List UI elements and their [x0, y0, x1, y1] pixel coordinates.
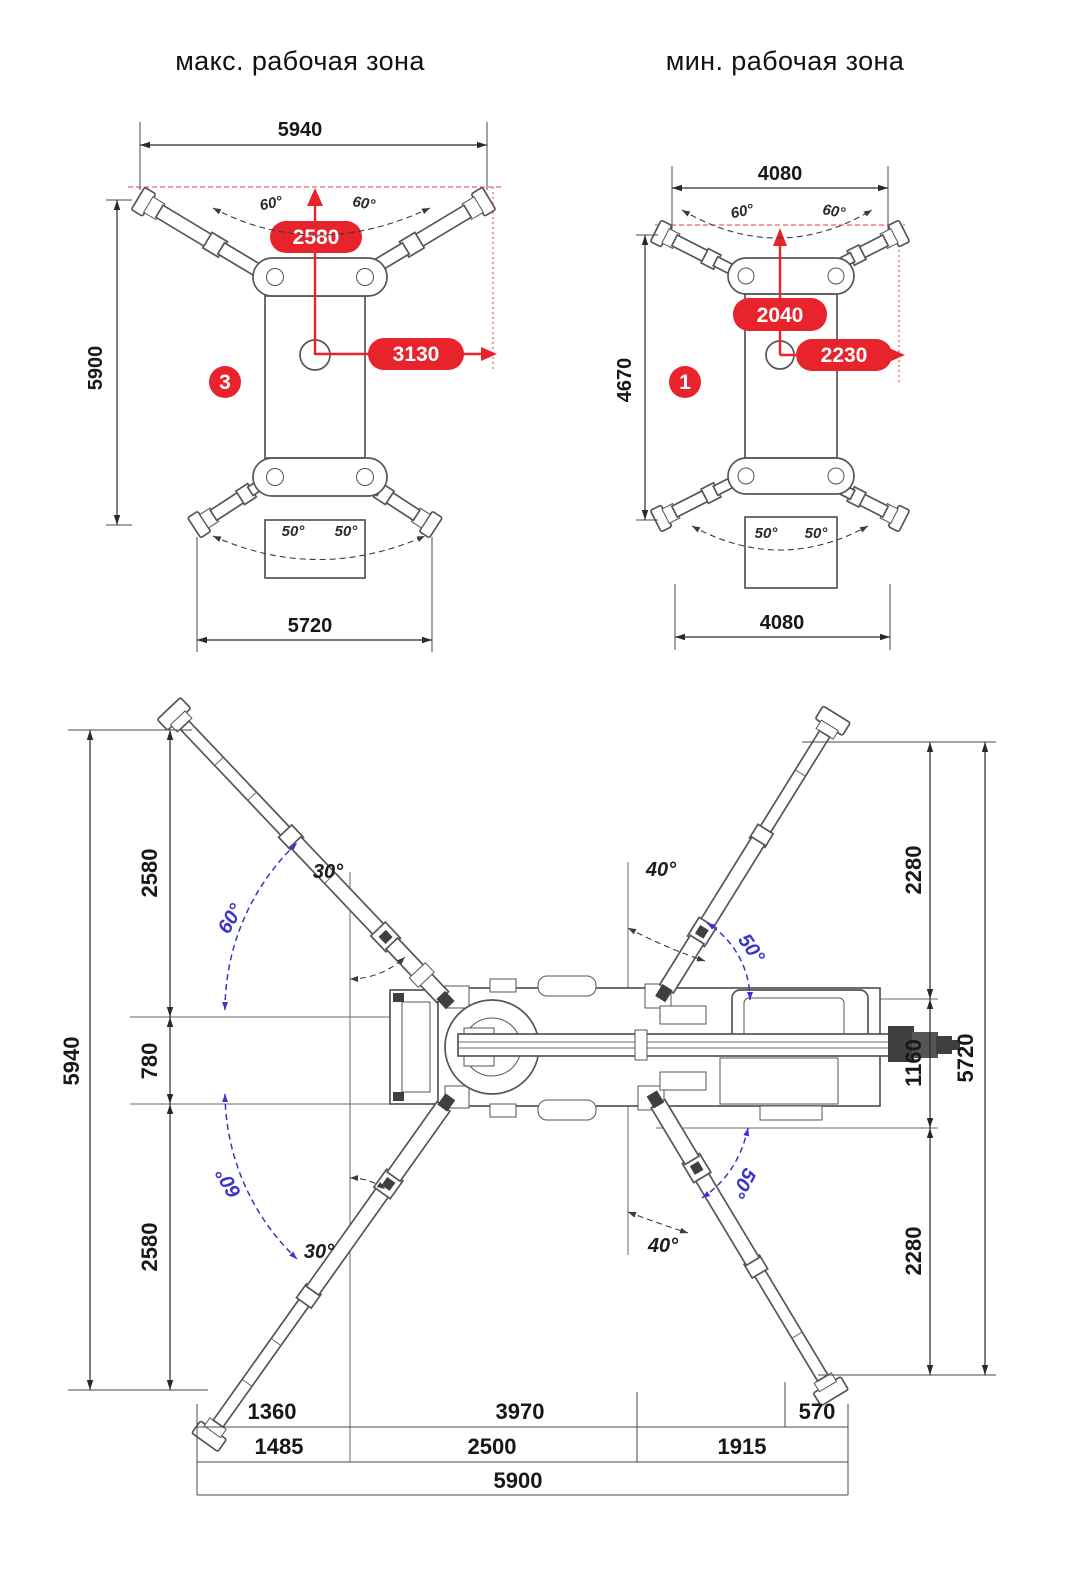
left-top-value: 2580 [137, 849, 162, 898]
row1-value-2: 3970 [496, 1399, 545, 1424]
outrigger-arm-top-left [157, 697, 462, 1016]
row2-value-2: 2500 [468, 1434, 517, 1459]
row1-value-1: 1360 [248, 1399, 297, 1424]
outrigger-arm-bottom-left [192, 1087, 464, 1451]
arrow-right-icon [481, 347, 497, 361]
row3-value-1: 5900 [494, 1468, 543, 1493]
angle-bottom-left-outer: 30° [304, 1241, 335, 1263]
rear-angle-right: 50° [805, 525, 829, 542]
front-angle-left: 60° [258, 193, 285, 215]
plan-view-diagram: 30° 60° 40° 50° 60° 30° 50° 40° 2580 780… [60, 690, 1020, 1500]
vertical-reach-value: 2580 [293, 226, 340, 249]
arrow-up-icon [307, 188, 323, 206]
arrow-up-icon [773, 228, 787, 246]
min-working-zone-title: мин. рабочая зона [600, 46, 970, 77]
angle-top-right-inner: 50° [733, 930, 769, 968]
max-zone-diagram: 2580 3130 3 60° 60° 50° 50° 5940 5900 57… [60, 100, 560, 670]
boom [458, 1034, 910, 1056]
right-middle-value: 1160 [901, 1039, 926, 1087]
row1-value-3: 570 [799, 1399, 836, 1424]
zone-index: 3 [219, 371, 231, 394]
top-width-value: 5940 [278, 119, 323, 141]
left-height-value: 4670 [614, 358, 636, 403]
left-total-value: 5940 [60, 1037, 84, 1086]
angle-top-right-outer: 40° [645, 859, 677, 881]
horizontal-reach-value: 3130 [393, 343, 440, 366]
right-total-value: 5720 [953, 1034, 978, 1083]
angle-bottom-right-outer: 40° [647, 1235, 679, 1257]
rear-angle-right: 50° [335, 523, 359, 540]
pivot-hole [267, 269, 284, 286]
angle-top-left-outer: 30° [313, 861, 344, 883]
pivot-hole [267, 469, 284, 486]
right-top-value: 2280 [901, 846, 926, 895]
front-angle-right: 60° [821, 201, 847, 222]
row2-value-1: 1485 [255, 1434, 304, 1459]
rear-angle-left: 50° [282, 523, 306, 540]
top-width-value: 4080 [758, 163, 803, 185]
vertical-reach-value: 2040 [757, 304, 804, 327]
right-bottom-value: 2280 [901, 1227, 926, 1276]
left-height-value: 5900 [85, 346, 107, 391]
bottom-width-value: 5720 [288, 615, 333, 637]
front-angle-right: 60° [351, 193, 377, 214]
pivot-hole [828, 268, 844, 284]
angle-bottom-left-inner: 60° [211, 1164, 246, 1202]
rear-angle-left: 50° [755, 525, 779, 542]
pivot-hole [828, 468, 844, 484]
pivot-hole [357, 469, 374, 486]
pivot-hole [738, 268, 754, 284]
min-zone-diagram: 2040 2230 1 60° 60° 50° 50° 4080 4670 40… [600, 140, 1010, 670]
bottom-width-value: 4080 [760, 612, 805, 634]
swing-arc-bottom-right-outer [628, 1212, 688, 1233]
outrigger-zones-diagram-page: макс. рабочая зона мин. рабочая зона [0, 0, 1080, 1593]
left-bottom-value: 2580 [137, 1223, 162, 1272]
row2-value-3: 1915 [718, 1434, 767, 1459]
angle-top-left-inner: 60° [214, 900, 249, 938]
pivot-hole [357, 269, 374, 286]
max-working-zone-title: макс. рабочая зона [100, 46, 500, 77]
front-angle-left: 60° [729, 201, 756, 223]
left-middle-value: 780 [137, 1043, 162, 1080]
horizontal-reach-value: 2230 [821, 344, 868, 367]
pivot-hole [738, 468, 754, 484]
zone-index: 1 [679, 371, 691, 394]
machine-body [390, 976, 960, 1120]
